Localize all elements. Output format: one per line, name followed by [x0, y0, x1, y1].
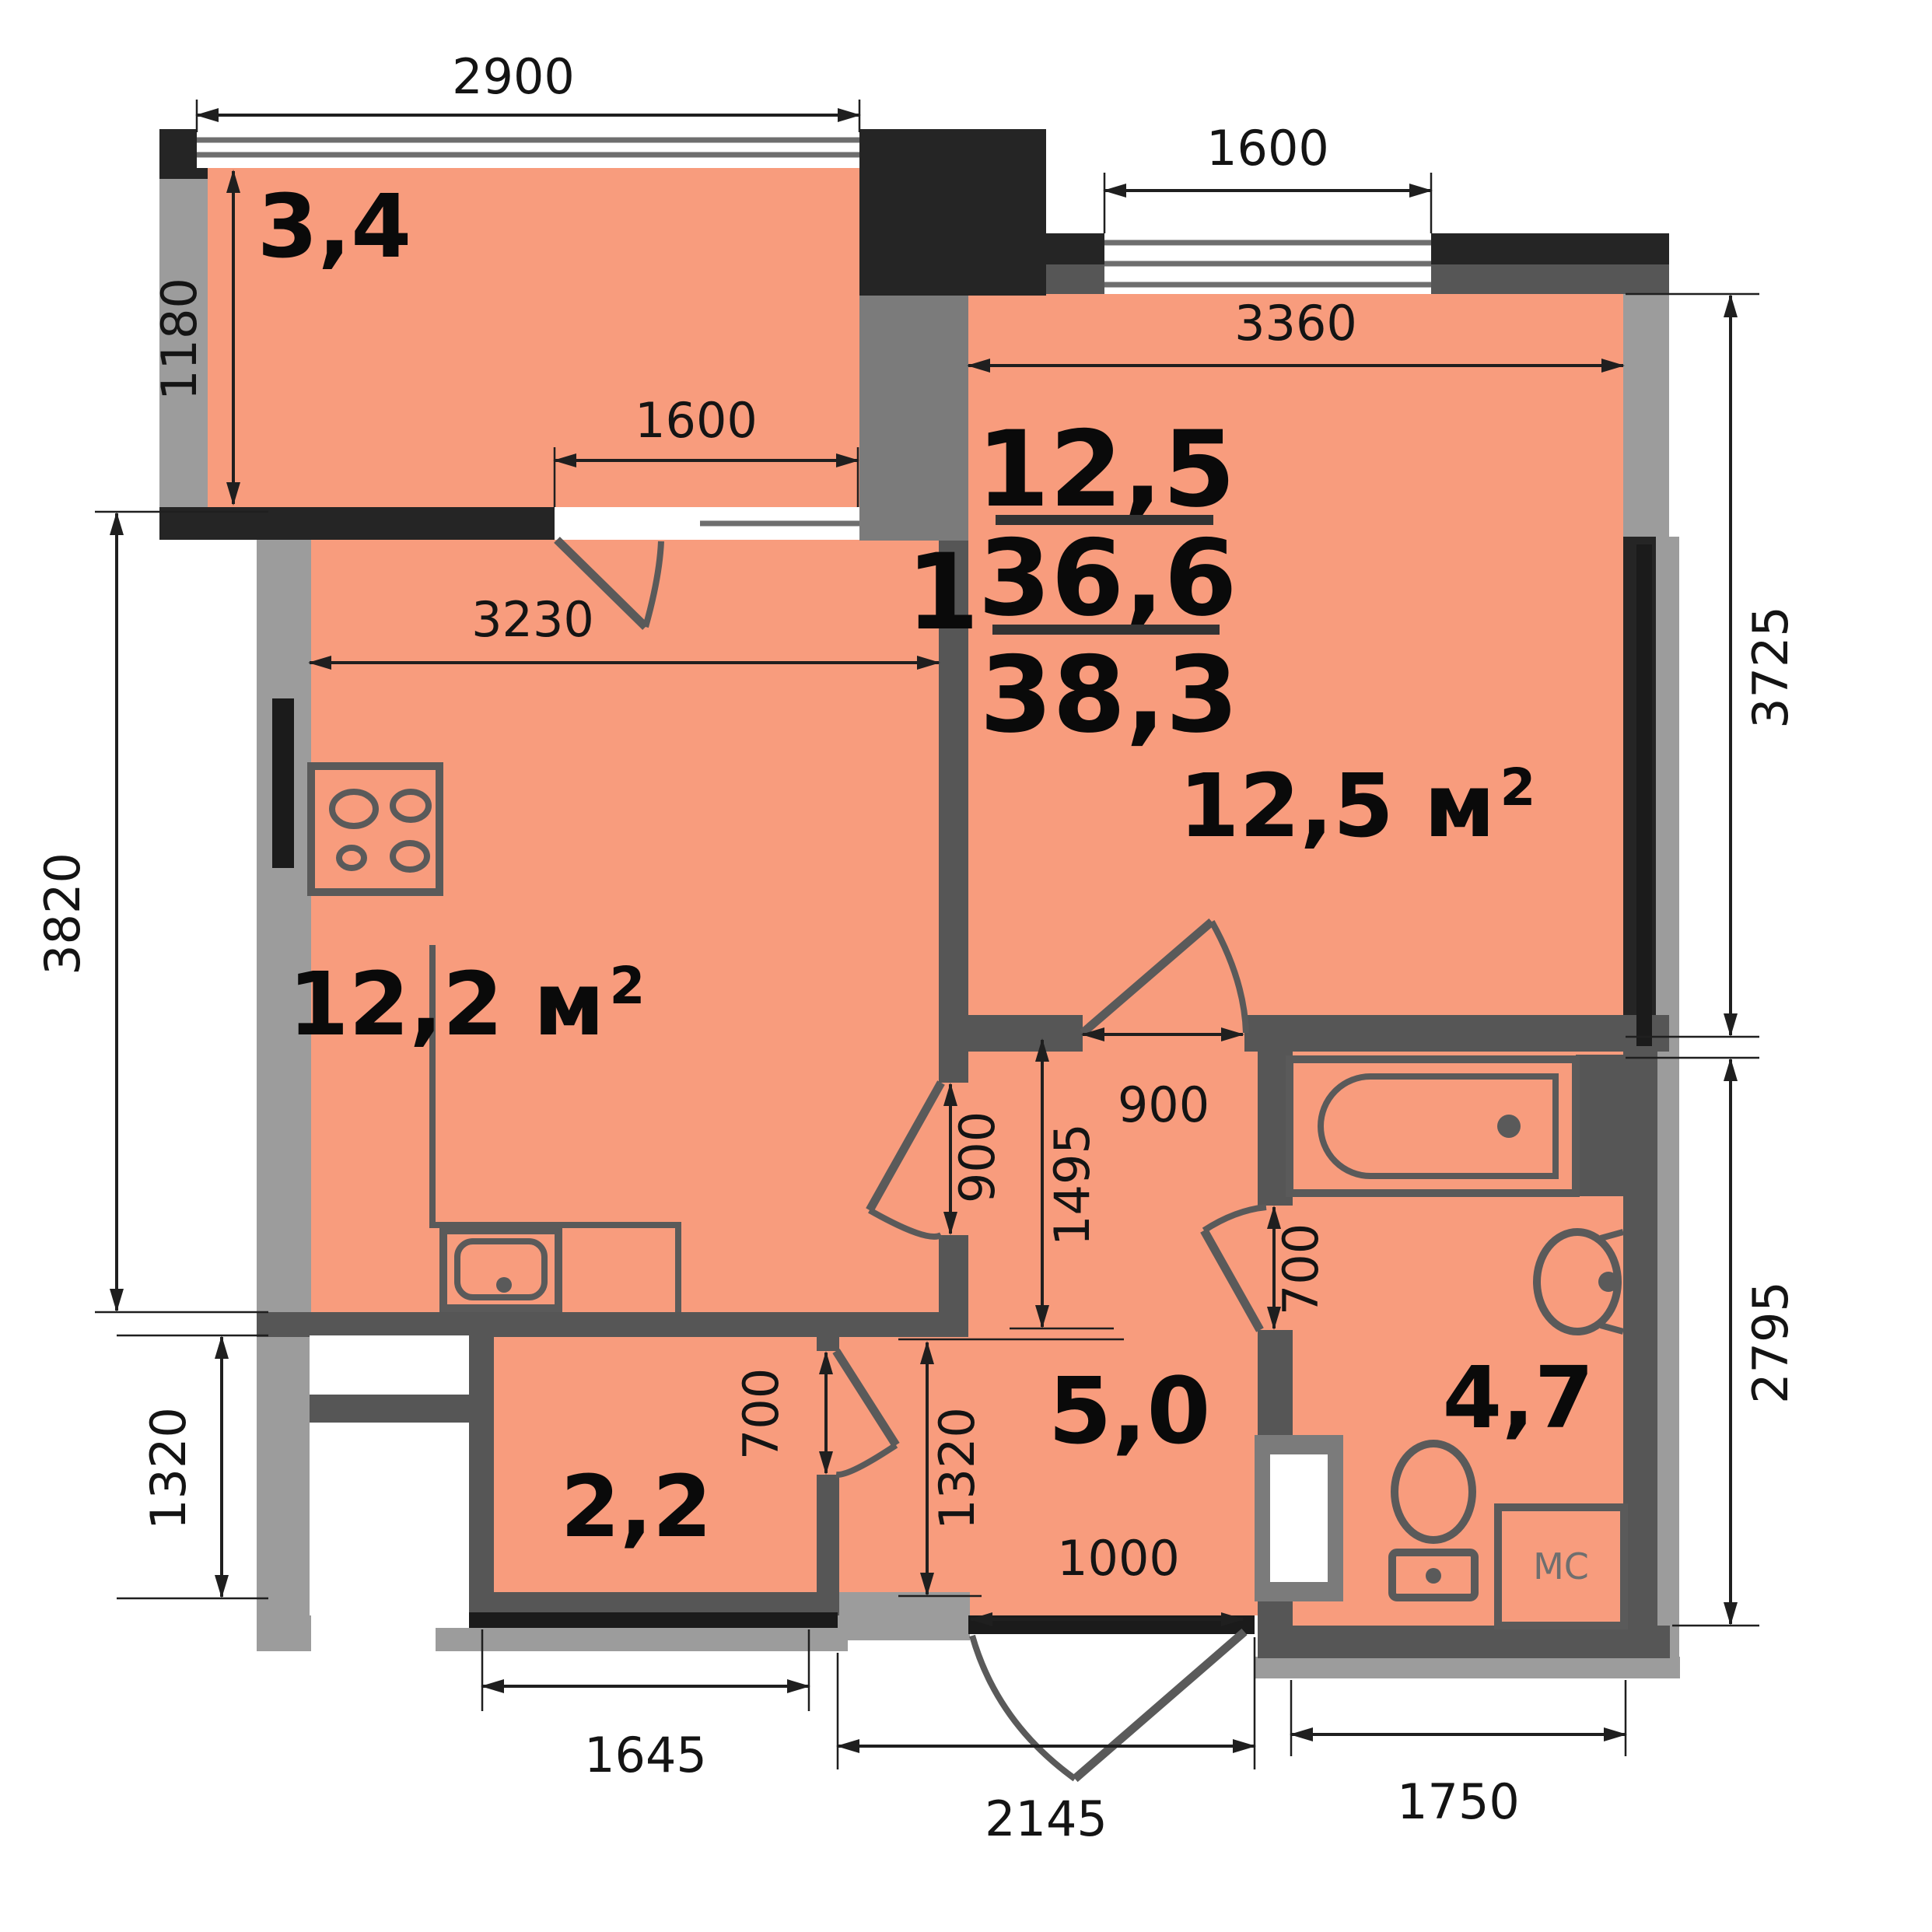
dim-balcony-width: 2900 — [197, 48, 859, 115]
entrance-door — [972, 1632, 1244, 1779]
svg-text:2900: 2900 — [452, 48, 575, 105]
right-shaft-core — [1636, 544, 1652, 1046]
living-top-wall-left-inner — [1046, 264, 1104, 294]
separator-wall-block — [859, 129, 1046, 296]
svg-text:1320: 1320 — [929, 1407, 985, 1530]
svg-text:1495: 1495 — [1044, 1123, 1101, 1246]
closet-bottom-wall — [451, 1592, 838, 1614]
closet-right-wall — [817, 1475, 839, 1615]
area-value: 36,6 — [978, 517, 1237, 639]
kitchen-left-band — [257, 509, 311, 1337]
closet-left-wall — [469, 1335, 494, 1617]
right-top-band — [1623, 292, 1669, 537]
hall-area-label: 5,0 — [1048, 1357, 1210, 1465]
svg-text:700: 700 — [733, 1368, 789, 1460]
balcony-area-label: 3,4 — [257, 177, 411, 278]
kitchen-area-label: 12,2 м2 — [289, 954, 646, 1055]
svg-text:1645: 1645 — [584, 1727, 707, 1783]
dim-entrance-span: 2145 — [838, 1746, 1255, 1847]
rooms-count: 1 — [906, 531, 979, 653]
dim-bath-height: 2795 — [1731, 1059, 1799, 1624]
vent-duct — [1270, 1454, 1328, 1582]
closet-bottom-band — [436, 1628, 848, 1651]
svg-text:1750: 1750 — [1397, 1773, 1520, 1830]
stair-niche — [310, 1335, 469, 1615]
svg-text:1000: 1000 — [1057, 1530, 1180, 1587]
dim-kitchen-height: 3820 — [34, 513, 117, 1311]
washing-machine-label: МС — [1533, 1545, 1589, 1587]
niche-divider-wall — [310, 1395, 469, 1423]
bath-left-wall-lower — [1258, 1330, 1293, 1437]
living-area-value: 12,5 — [976, 408, 1235, 530]
dim-left-lower: 1320 — [140, 1337, 222, 1597]
closet-wall-core — [469, 1612, 838, 1628]
svg-text:1600: 1600 — [635, 392, 758, 449]
kitchen-hall-wall-lower — [939, 1235, 968, 1337]
svg-text:1600: 1600 — [1206, 120, 1329, 177]
closet-doorway-floor — [817, 1349, 839, 1475]
tub-side-wall — [1576, 1055, 1623, 1196]
dim-living-window: 1600 — [1104, 120, 1431, 191]
right-mid-band — [1656, 537, 1679, 1050]
separator-band — [859, 296, 968, 541]
svg-text:1180: 1180 — [151, 278, 208, 401]
svg-text:3820: 3820 — [34, 852, 91, 975]
bathroom-bottom-wall — [1258, 1626, 1670, 1658]
total-area-value: 38,3 — [979, 634, 1238, 756]
svg-text:3360: 3360 — [1234, 295, 1357, 352]
closet-right-wall-stub — [817, 1335, 839, 1351]
floor-plan: МС 3,4 12,2 м2 12,5 м2 5,0 2,2 4,7 12,5 … — [0, 0, 1932, 1932]
bath-right-wall — [1623, 1050, 1657, 1626]
kitchen-bottom-wall — [257, 1312, 967, 1337]
bathroom-area-label: 4,7 — [1443, 1348, 1594, 1447]
dim-closet-width: 1645 — [482, 1686, 809, 1783]
dim-bath-width: 1750 — [1291, 1734, 1626, 1830]
living-bottom-wall-right — [1244, 1015, 1669, 1052]
svg-text:900: 900 — [949, 1111, 1006, 1203]
svg-text:2795: 2795 — [1742, 1281, 1799, 1404]
entry-left-band — [838, 1592, 970, 1640]
living-bottom-wall-left — [968, 1015, 1083, 1052]
svg-text:3725: 3725 — [1742, 606, 1799, 729]
floor-plan-page: МС 3,4 12,2 м2 12,5 м2 5,0 2,2 4,7 12,5 … — [0, 0, 1932, 1932]
closet-area-label: 2,2 — [561, 1457, 712, 1556]
svg-text:3230: 3230 — [471, 591, 594, 648]
svg-text:700: 700 — [1272, 1223, 1329, 1315]
svg-text:2145: 2145 — [985, 1790, 1108, 1847]
svg-text:900: 900 — [1118, 1076, 1209, 1133]
dim-living-height: 3725 — [1731, 296, 1799, 1035]
left-lower-band — [257, 1337, 311, 1651]
balcony-top-window — [197, 129, 859, 168]
living-room-window — [1104, 233, 1431, 294]
living-top-wall-left — [1046, 233, 1104, 264]
bath-bottom-band — [1255, 1657, 1680, 1678]
svg-text:1320: 1320 — [140, 1407, 197, 1530]
dim-bath-door: 700 — [1272, 1207, 1329, 1328]
kitchen-floor — [310, 538, 939, 1312]
living-top-wall-right-inner — [1431, 264, 1669, 294]
balcony-door-opening — [555, 507, 700, 540]
living-area-label: 12,5 м2 — [1179, 756, 1536, 857]
balcony-bottom-window — [700, 507, 859, 540]
bath-left-wall-bottom — [1258, 1598, 1293, 1626]
right-bath-band — [1656, 1050, 1679, 1678]
kitchen-left-window-core — [272, 698, 294, 868]
